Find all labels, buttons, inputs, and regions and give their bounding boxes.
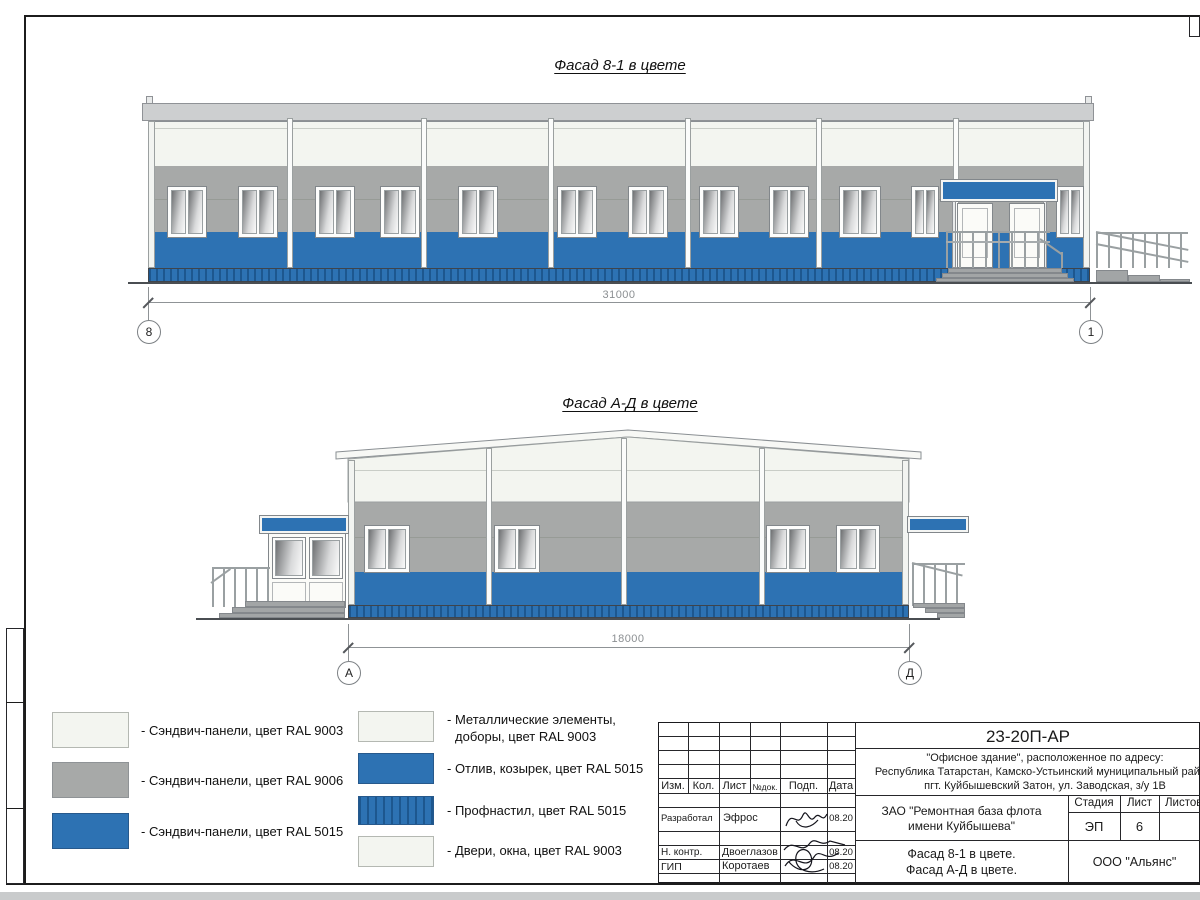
window — [494, 525, 540, 573]
pilaster — [621, 438, 627, 605]
axis-marker-a: А — [337, 661, 361, 685]
side-stair-step — [1096, 270, 1128, 282]
address-line3: пгт. Куйбышевский Затон, ул. Заводская, … — [855, 780, 1200, 792]
legend-swatch-profnastil — [358, 796, 434, 825]
legend-label: - Металлические элементы, — [447, 712, 616, 727]
legend-swatch-otliv — [358, 753, 434, 784]
side-stair-step — [1128, 275, 1160, 282]
axis-marker-d: Д — [898, 661, 922, 685]
window — [380, 186, 420, 238]
frame-strip-divider — [6, 702, 24, 703]
frame-left-strip — [6, 628, 24, 884]
sheet-edge-shadow — [0, 892, 1200, 900]
sheet-number: 6 — [1120, 819, 1159, 834]
window — [458, 186, 498, 238]
pilaster — [486, 448, 492, 605]
window — [315, 186, 355, 238]
row-developer-role: Разработал — [661, 813, 713, 824]
corner-trim — [902, 460, 909, 605]
corner-trim — [1083, 121, 1090, 268]
window — [766, 525, 810, 573]
pilaster — [816, 118, 822, 268]
titleblock-line — [719, 722, 720, 883]
legend-swatch-doors — [358, 836, 434, 867]
legend-label: - Профнастил, цвет RAL 5015 — [447, 803, 626, 818]
col-header-list: Лист — [719, 780, 750, 792]
dimension-line — [348, 647, 909, 648]
vestibule-panel — [309, 582, 343, 603]
extension-line — [348, 624, 349, 661]
dimension-value: 31000 — [569, 289, 669, 301]
titleblock-line — [855, 840, 1200, 841]
legend-swatch-ral9006 — [52, 762, 129, 798]
facade2-wall-outline — [348, 460, 909, 606]
frame-strip-divider — [6, 808, 24, 809]
window — [839, 186, 881, 238]
facade1-roof-fascia — [142, 103, 1094, 121]
corner-trim — [148, 121, 155, 268]
col-header-podp: Подп. — [780, 780, 827, 792]
titleblock-line — [1068, 812, 1200, 813]
sheet-title-line1: Фасад 8-1 в цвете. — [855, 847, 1068, 861]
vestibule-panel — [272, 582, 306, 603]
legend-swatch-ral5015 — [52, 813, 129, 849]
entrance-canopy — [941, 180, 1057, 201]
col-header-data: Дата — [827, 780, 855, 792]
row-gip-role: ГИП — [661, 861, 682, 873]
pilaster — [759, 448, 765, 605]
extension-line — [909, 624, 910, 661]
window-narrow — [911, 186, 939, 238]
vestibule-glazing — [272, 537, 306, 579]
sheet-title-line2: Фасад А-Д в цвете. — [855, 863, 1068, 877]
col-header-kol: Кол. — [688, 780, 719, 792]
client-line1: ЗАО "Ремонтная база флота — [855, 804, 1068, 818]
porch-handrail-post — [1061, 252, 1063, 268]
company-name: ООО "Альянс" — [1068, 855, 1200, 869]
window — [364, 525, 410, 573]
titleblock-line — [658, 793, 855, 794]
address-line1: "Офисное здание", расположенное по адрес… — [855, 752, 1200, 764]
window — [238, 186, 278, 238]
legend-swatch-ral9003 — [52, 712, 129, 748]
dimension-line — [148, 302, 1090, 303]
signature — [782, 805, 830, 832]
frame-left — [24, 15, 26, 884]
drawing-sheet: Фасад 8-1 в цвете — [0, 0, 1200, 900]
axis-marker-8: 8 — [137, 320, 161, 344]
window — [628, 186, 668, 238]
window-narrow — [1056, 186, 1084, 238]
frame-corner-box — [1189, 16, 1200, 37]
legend-label: - Двери, окна, цвет RAL 9003 — [447, 843, 622, 858]
col-header-ndok: №док. — [750, 782, 780, 792]
extension-line — [1090, 287, 1091, 321]
legend-label: - Сэндвич-панели, цвет RAL 5015 — [141, 824, 343, 839]
stage-value: ЭП — [1068, 819, 1120, 834]
facade2-ground-line — [196, 618, 940, 620]
facade-8-1-title: Фасад 8-1 в цвете — [470, 57, 770, 74]
vestibule-canopy — [260, 516, 348, 533]
window — [769, 186, 809, 238]
legend-label: - Сэндвич-панели, цвет RAL 9003 — [141, 723, 343, 738]
facade-ad-title: Фасад А-Д в цвете — [480, 395, 780, 412]
legend-label: - Сэндвич-панели, цвет RAL 9006 — [141, 773, 343, 788]
entrance-step — [936, 278, 1074, 282]
pilaster — [685, 118, 691, 268]
porch-railing — [946, 231, 1050, 268]
col-header-sheet: Лист — [1120, 797, 1159, 809]
col-header-sheets: Листов — [1159, 797, 1200, 809]
titleblock-line — [855, 795, 1200, 796]
address-line2: Республика Татарстан, Камско-Устьинский … — [855, 766, 1200, 778]
pilaster — [421, 118, 427, 268]
vestibule-step — [219, 613, 345, 618]
window — [836, 525, 880, 573]
signature — [779, 836, 849, 878]
legend-label: доборы, цвет RAL 9003 — [455, 729, 596, 744]
row-ncontr-name: Двоеглазов — [722, 846, 778, 858]
vestibule-glazing — [309, 537, 343, 579]
col-header-stage: Стадия — [1068, 797, 1120, 809]
row-gip-name: Коротаев — [722, 860, 770, 872]
row-developer-name: Эфрос — [723, 812, 758, 824]
corner-trim — [348, 460, 355, 605]
extension-line — [148, 287, 149, 321]
legend-swatch-metal — [358, 711, 434, 742]
frame-bottom — [6, 883, 1200, 885]
row-ncontr-role: Н. контр. — [661, 847, 702, 858]
facade1-ground-line — [128, 282, 1192, 284]
side-stair-railing — [1096, 232, 1188, 268]
doc-number: 23-20П-АР — [855, 727, 1200, 747]
window — [167, 186, 207, 238]
col-header-izm: Изм. — [658, 780, 688, 792]
window — [699, 186, 739, 238]
facade2-profnastil-base — [348, 605, 909, 618]
titleblock-line — [855, 748, 1200, 749]
client-line2: имени Куйбышева" — [855, 819, 1068, 833]
side-step — [937, 613, 965, 618]
legend-label: - Отлив, козырек, цвет RAL 5015 — [447, 761, 643, 776]
axis-marker-1: 1 — [1079, 320, 1103, 344]
side-stair-step — [1160, 279, 1190, 282]
row-developer-date: 08.20 — [827, 813, 855, 824]
frame-top — [24, 15, 1200, 17]
pilaster — [548, 118, 554, 268]
dimension-value: 18000 — [578, 633, 678, 645]
side-canopy — [908, 517, 968, 532]
pilaster — [287, 118, 293, 268]
window — [557, 186, 597, 238]
